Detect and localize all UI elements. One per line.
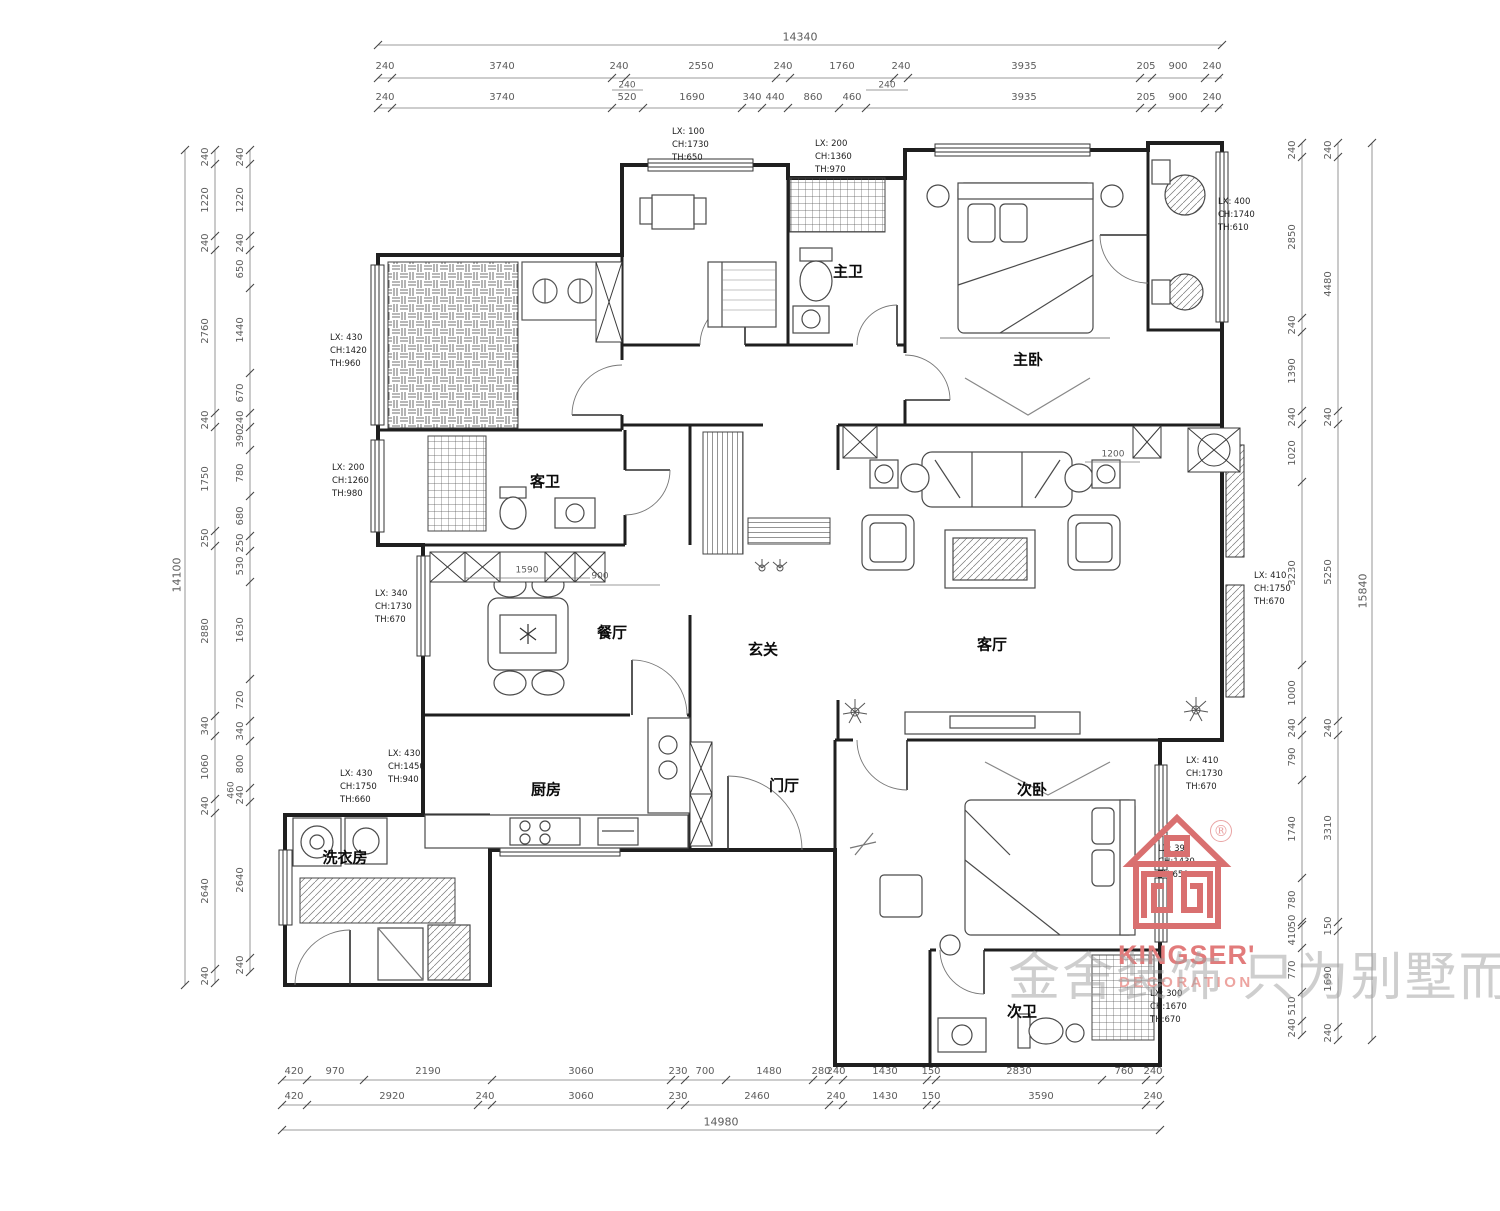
dim-label: 860 xyxy=(803,93,822,103)
room-label-second-bedroom: 次卧 xyxy=(1017,783,1047,798)
dim-label: 3060 xyxy=(568,1067,593,1077)
window-tag-line: CH:1420 xyxy=(330,345,367,358)
dim-label: 240 xyxy=(1288,1018,1298,1037)
dim-label: 1690 xyxy=(679,93,704,103)
dim-label: 670 xyxy=(236,383,246,402)
dim-label: 240 xyxy=(1288,407,1298,426)
dim-label: 240 xyxy=(826,1067,845,1077)
dim-label: 340 xyxy=(236,721,246,740)
dim-label: 230 xyxy=(668,1092,687,1102)
dim-label: 240 xyxy=(1324,1023,1334,1042)
window-tag-line: TH:960 xyxy=(330,358,367,371)
window-tag-line: TH:670 xyxy=(1186,781,1223,794)
dim-label: 240 xyxy=(1143,1092,1162,1102)
window-tag-line: TH:670 xyxy=(375,614,412,627)
dim-label: 420 xyxy=(284,1092,303,1102)
dim-label: 250 xyxy=(236,533,246,552)
window-tag: LX: 100CH:1730TH:650 xyxy=(672,126,709,166)
window-tag-line: LX: 430 xyxy=(388,748,425,761)
radiator-vertical xyxy=(703,432,743,554)
room-label-entry-hall: 门厅 xyxy=(769,779,799,794)
guest-bath-fixtures xyxy=(500,487,595,529)
window-tag-line: LX: 340 xyxy=(375,588,412,601)
bathtub xyxy=(790,178,885,232)
room-label-guest-bath: 客卫 xyxy=(530,475,560,490)
window-tag-line: CH:1750 xyxy=(1254,583,1291,596)
room-label-kitchen: 厨房 xyxy=(531,783,561,798)
room-label-dining: 餐厅 xyxy=(597,626,627,641)
dim-label: 1480 xyxy=(756,1067,781,1077)
window-tag-line: LX: 200 xyxy=(332,462,369,475)
dim-label: 240 xyxy=(891,62,910,72)
dim-label: 1590 xyxy=(516,567,539,576)
dim-label: 1220 xyxy=(201,187,211,212)
window-tag-line: TH:980 xyxy=(332,488,369,501)
dim-label: 15840 xyxy=(1358,574,1369,609)
master-bed xyxy=(927,183,1123,415)
window-tag-line: CH:1670 xyxy=(1150,1001,1187,1014)
window-tag: LX: 300CH:1670TH:670 xyxy=(1150,988,1187,1028)
room-label-master-bedroom: 主卧 xyxy=(1013,353,1043,368)
dim-label: 970 xyxy=(325,1067,344,1077)
window-tag-line: CH:1730 xyxy=(375,601,412,614)
room-label-laundry: 洗衣房 xyxy=(322,851,367,866)
dim-label: 2920 xyxy=(379,1092,404,1102)
window-tag-line: CH:1450 xyxy=(388,761,425,774)
dim-label: 680 xyxy=(236,506,246,525)
dim-label: 1630 xyxy=(236,617,246,642)
dim-label: 410 xyxy=(1288,926,1298,945)
dim-label: 240 xyxy=(609,62,628,72)
room-label-second-bath: 次卫 xyxy=(1007,1005,1037,1020)
window-tag-line: CH:1730 xyxy=(1186,768,1223,781)
dim-label: 1060 xyxy=(201,754,211,779)
logo-brand-text: KINGSER' xyxy=(1118,940,1268,971)
window-tag-line: CH:1360 xyxy=(815,151,852,164)
dim-label: 14100 xyxy=(172,558,183,593)
dim-label: 240 xyxy=(1143,1067,1162,1077)
window-tag-line: TH:610 xyxy=(1218,222,1255,235)
dim-label: 3935 xyxy=(1011,93,1036,103)
dim-label: 240 xyxy=(475,1092,494,1102)
dim-label: 790 xyxy=(1288,747,1298,766)
dim-label: 1440 xyxy=(236,317,246,342)
dim-label: 510 xyxy=(1288,996,1298,1015)
window-tag-line: CH:1260 xyxy=(332,475,369,488)
dim-label: 900 xyxy=(1168,62,1187,72)
dim-label: 1430 xyxy=(872,1092,897,1102)
dim-label: 5250 xyxy=(1324,559,1334,584)
dim-label: 2550 xyxy=(688,62,713,72)
dim-label: 3590 xyxy=(1028,1092,1053,1102)
dim-label: 250 xyxy=(201,528,211,547)
dim-label: 240 xyxy=(236,955,246,974)
kingser-logo: ® KINGSER' DECORATION xyxy=(1108,812,1268,991)
room-label-living: 客厅 xyxy=(977,638,1007,653)
dim-label: 240 xyxy=(236,233,246,252)
window-tag: LX: 410CH:1730TH:670 xyxy=(1186,755,1223,795)
dim-label: 770 xyxy=(1288,960,1298,979)
window-tag: LX: 430CH:1750TH:660 xyxy=(340,768,377,808)
dim-label: 1430 xyxy=(872,1067,897,1077)
dim-label: 14340 xyxy=(783,32,818,43)
dim-label: 4480 xyxy=(1324,271,1334,296)
dim-label: 2830 xyxy=(1006,1067,1031,1077)
window-tag-line: LX: 100 xyxy=(672,126,709,139)
dim-label: 780 xyxy=(236,463,246,482)
window-tag-line: LX: 430 xyxy=(340,768,377,781)
dim-label: 780 xyxy=(1288,890,1298,909)
dim-label: 150 xyxy=(921,1067,940,1077)
dim-label: 240 xyxy=(375,93,394,103)
window-tag-line: TH:670 xyxy=(1150,1014,1187,1027)
dim-label: 800 xyxy=(236,754,246,773)
window-tag-line: TH:660 xyxy=(340,794,377,807)
dim-label: 340 xyxy=(742,93,761,103)
dim-label: 1690 xyxy=(1324,966,1334,991)
dim-label: 700 xyxy=(695,1067,714,1077)
dim-label: 240 xyxy=(201,796,211,815)
dim-label: 1390 xyxy=(1288,358,1298,383)
dim-label: 240 xyxy=(236,410,246,429)
window-tag: LX: 410CH:1750TH:670 xyxy=(1254,570,1291,610)
dim-label: 240 xyxy=(236,785,246,804)
window-tag-line: TH:970 xyxy=(815,164,852,177)
dim-label: 390 xyxy=(236,428,246,447)
dim-label: 50 xyxy=(1288,915,1298,928)
registered-mark: ® xyxy=(1210,820,1232,842)
window-tag: LX: 430CH:1420TH:960 xyxy=(330,332,367,372)
dim-label: 900 xyxy=(1168,93,1187,103)
dim-label: 3060 xyxy=(568,1092,593,1102)
dim-label: 900 xyxy=(591,573,608,582)
dim-label: 240 xyxy=(201,233,211,252)
dim-label: 2880 xyxy=(201,618,211,643)
balcony-furniture xyxy=(1152,160,1205,310)
dim-label: 240 xyxy=(201,410,211,429)
dim-label: 2460 xyxy=(744,1092,769,1102)
window-tag-line: TH:670 xyxy=(1254,596,1291,609)
window-tag-line: LX: 430 xyxy=(330,332,367,345)
window-tag-line: LX: 200 xyxy=(815,138,852,151)
window-tag: LX: 400CH:1740TH:610 xyxy=(1218,196,1255,236)
dim-label: 440 xyxy=(765,93,784,103)
dim-label: 2850 xyxy=(1288,224,1298,249)
window-tag-line: LX: 400 xyxy=(1218,196,1255,209)
dim-label: 2640 xyxy=(201,878,211,903)
dim-label: 1220 xyxy=(236,187,246,212)
dim-label: 3740 xyxy=(489,93,514,103)
floorplan-canvas: 主卫 主卧 客卫 餐厅 玄关 客厅 厨房 门厅 洗衣房 次卧 次卫 LX: 10… xyxy=(0,0,1500,1211)
dim-label: 240 xyxy=(1288,718,1298,737)
dim-label: 240 xyxy=(1288,315,1298,334)
dim-label: 205 xyxy=(1136,93,1155,103)
window-tag: LX: 430CH:1450TH:940 xyxy=(388,748,425,788)
window-tag-line: CH:1730 xyxy=(672,139,709,152)
window-tag: LX: 200CH:1360TH:970 xyxy=(815,138,852,178)
dim-label: 14980 xyxy=(704,1117,739,1128)
study-furniture xyxy=(640,195,776,327)
dim-label: 1020 xyxy=(1288,440,1298,465)
dim-label: 3740 xyxy=(489,62,514,72)
dim-label: 240 xyxy=(878,82,895,91)
wardrobe-hatch xyxy=(388,262,518,428)
dim-label: 240 xyxy=(236,147,246,166)
dim-label: 1740 xyxy=(1288,816,1298,841)
window-tag-line: LX: 410 xyxy=(1186,755,1223,768)
dim-label: 240 xyxy=(375,62,394,72)
dim-label: 3935 xyxy=(1011,62,1036,72)
window-tag-line: CH:1740 xyxy=(1218,209,1255,222)
room-label-foyer: 玄关 xyxy=(748,643,778,658)
dim-label: 530 xyxy=(236,556,246,575)
dim-label: 150 xyxy=(1324,916,1334,935)
window-tag-line: CH:1750 xyxy=(340,781,377,794)
radiator-horizontal xyxy=(748,518,830,544)
master-bath-fixtures xyxy=(793,248,832,333)
dim-label: 240 xyxy=(1324,718,1334,737)
dim-label: 1200 xyxy=(1102,451,1125,460)
window-tag-line: TH:650 xyxy=(672,152,709,165)
dim-label: 760 xyxy=(1114,1067,1133,1077)
dim-label: 420 xyxy=(284,1067,303,1077)
dim-label: 2190 xyxy=(415,1067,440,1077)
dim-label: 720 xyxy=(236,690,246,709)
drying-rack xyxy=(300,878,455,923)
dim-label: 150 xyxy=(921,1092,940,1102)
dim-label: 1750 xyxy=(201,466,211,491)
dim-label: 240 xyxy=(826,1092,845,1102)
dim-label: 240 xyxy=(1324,140,1334,159)
dim-label: 3310 xyxy=(1324,815,1334,840)
dim-label: 340 xyxy=(201,716,211,735)
window-tag-line: TH:940 xyxy=(388,774,425,787)
window-tag: LX: 200CH:1260TH:980 xyxy=(332,462,369,502)
window-tag-line: LX: 410 xyxy=(1254,570,1291,583)
dim-label: 240 xyxy=(618,82,635,91)
dim-label: 240 xyxy=(201,966,211,985)
dim-label: 240 xyxy=(773,62,792,72)
logo-sub-text: DECORATION xyxy=(1119,974,1268,991)
dining-set xyxy=(488,573,568,695)
second-bed xyxy=(850,762,1135,955)
dim-label: 520 xyxy=(617,93,636,103)
dim-label: 240 xyxy=(1202,62,1221,72)
dim-label: 240 xyxy=(1324,407,1334,426)
dim-label: 230 xyxy=(668,1067,687,1077)
dim-label: 1000 xyxy=(1288,680,1298,705)
dim-label: 240 xyxy=(1202,93,1221,103)
dim-label: 650 xyxy=(236,259,246,278)
dim-label: 205 xyxy=(1136,62,1155,72)
dim-label: 2760 xyxy=(201,318,211,343)
window-tag: LX: 340CH:1730TH:670 xyxy=(375,588,412,628)
dim-label: 240 xyxy=(1288,140,1298,159)
sofa-group xyxy=(862,452,1120,734)
dim-label: 240 xyxy=(201,147,211,166)
room-label-master-bath: 主卫 xyxy=(833,265,863,280)
shower-guest xyxy=(428,436,486,531)
dim-label: 2640 xyxy=(236,867,246,892)
dim-label: 1760 xyxy=(829,62,854,72)
dim-label: 460 xyxy=(842,93,861,103)
